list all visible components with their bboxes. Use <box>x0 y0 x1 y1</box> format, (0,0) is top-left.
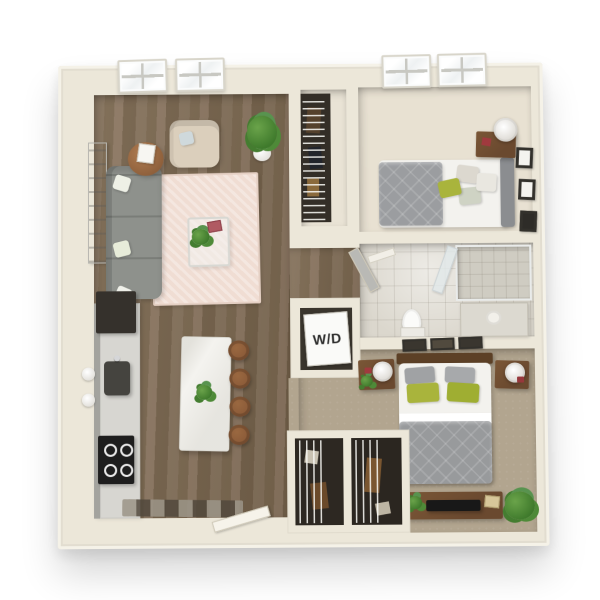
bedroom2-entry-passage <box>288 378 298 430</box>
cooktop <box>98 436 134 485</box>
bedroom1-wall-frame-2 <box>518 179 536 201</box>
living-plant-icon <box>247 116 277 150</box>
kitchen-sink <box>104 361 130 395</box>
island-plant-icon <box>196 385 212 400</box>
bedroom2-lamp-left-icon <box>373 361 393 381</box>
closet2-wire-shelf-left <box>299 440 328 523</box>
closet2-wire-shelf-right <box>355 440 382 523</box>
apartment-floor-plan: W/D <box>58 63 550 550</box>
console-decor-box <box>484 495 500 509</box>
toilet-tank <box>400 327 425 337</box>
bar-stool-3 <box>229 397 250 417</box>
refrigerator <box>96 291 136 333</box>
kitchen-counter <box>94 303 140 519</box>
burner-icon <box>104 444 117 457</box>
bedroom2-wall-frame-2 <box>430 338 455 351</box>
bedroom2-nightstand-decor <box>517 377 524 383</box>
counter-canister-2 <box>82 394 95 407</box>
bar-stool-2 <box>229 368 250 388</box>
bedroom2-floor-plant-icon <box>505 491 536 520</box>
tv <box>426 500 480 512</box>
entry-mat <box>122 499 243 517</box>
counter-canister-1 <box>82 367 95 380</box>
washer-dryer-label: W/D <box>312 330 342 348</box>
bedroom2-green-pillow-1 <box>406 382 439 403</box>
burner-icon <box>120 444 133 457</box>
bar-stool-4 <box>229 425 250 445</box>
bedroom1-pillow-3 <box>476 173 497 192</box>
side-table-decor <box>137 143 156 164</box>
bedroom2-nightstand-decor <box>365 368 372 374</box>
bedroom1-duvet <box>379 162 443 226</box>
bedroom2-green-pillow-2 <box>447 382 480 403</box>
bedroom1-wall-frame-3 <box>519 210 537 232</box>
living-window-1 <box>117 59 168 94</box>
window-panes <box>385 58 427 85</box>
bar-stool-1 <box>228 340 249 360</box>
bedroom2-duvet <box>399 421 492 484</box>
window-panes <box>121 63 163 90</box>
bedroom1-wall-frame-1 <box>516 147 534 169</box>
bedroom1-nightstand-decor <box>481 137 491 146</box>
vanity-sink-icon <box>486 311 501 325</box>
bedroom2-nightstand-plant-icon <box>361 376 373 387</box>
bedroom2-gray-pillow-1 <box>404 366 435 384</box>
bedroom2-gray-pillow-2 <box>445 366 476 383</box>
bedroom2-wall-frame-3 <box>458 336 483 349</box>
closet1-wire-shelf <box>303 96 326 221</box>
coffee-table-plant-icon <box>192 229 210 245</box>
bedroom1-window-2 <box>437 53 488 88</box>
window-panes <box>179 61 221 88</box>
washer-dryer-unit: W/D <box>303 311 351 366</box>
burner-icon <box>120 464 133 477</box>
armchair <box>170 120 220 168</box>
bedroom1-lamp-icon <box>494 118 518 142</box>
burner-icon <box>104 464 117 477</box>
shower <box>455 245 532 301</box>
bedroom2-wall-frame-1 <box>402 339 427 352</box>
floor-plan-image: W/D <box>0 0 600 600</box>
bedroom1-headboard <box>500 157 515 226</box>
faucet-icon <box>114 355 120 361</box>
media-shelf <box>88 142 107 263</box>
bedroom1-window-1 <box>381 54 432 89</box>
living-window-2 <box>175 57 225 92</box>
window-panes <box>441 57 483 84</box>
